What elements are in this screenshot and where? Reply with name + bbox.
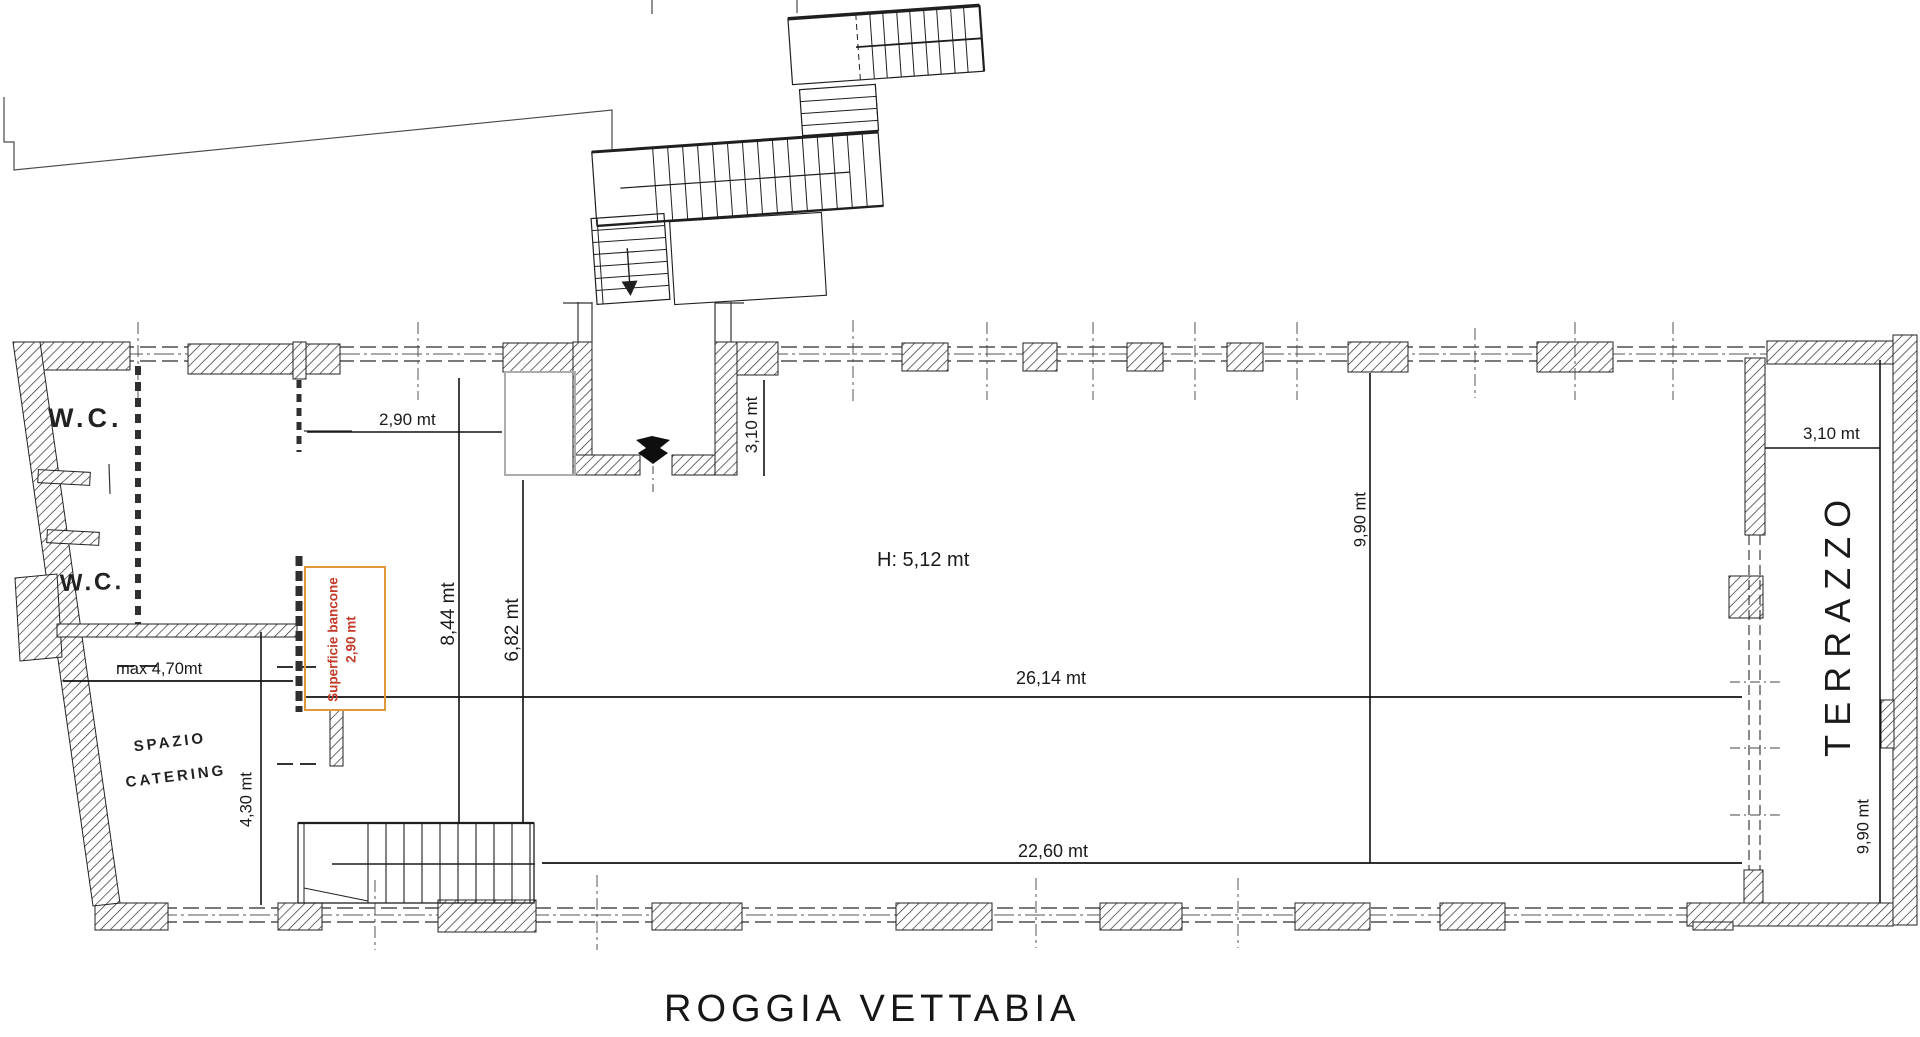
- floor-plan-page: W.C. W.C. SPAZIO CATERING Superficie ban…: [0, 0, 1920, 1037]
- dim-catering-max-width: max 4,70mt: [116, 661, 202, 678]
- entrance-vestibule: [505, 302, 744, 495]
- terrazzo-wall: [1729, 358, 1780, 903]
- label-height: H: 5,12 mt: [877, 550, 969, 571]
- boundary-line: [4, 0, 797, 170]
- entrance-arrow-icon: [636, 436, 670, 464]
- right-wall: [1881, 335, 1917, 925]
- label-bancone-line1: Superficie bancone: [324, 565, 342, 715]
- down-arrow-icon: [619, 248, 638, 297]
- label-bancone: Superficie bancone 2,90 mt: [324, 565, 359, 715]
- staircase-bottom: [298, 823, 535, 903]
- dim-terrazzo-width: 3,10 mt: [1803, 425, 1860, 443]
- caption-roggia-vettabia: ROGGIA VETTABIA: [664, 990, 1080, 1030]
- dim-opening-top: 2,90 mt: [379, 411, 436, 429]
- label-bancone-line2: 2,90 mt: [342, 565, 360, 715]
- dim-entrance-depth: 3,10 mt: [743, 365, 761, 485]
- label-terrazzo: TERRAZZO: [1819, 474, 1857, 774]
- dim-inner-span: 6,82 mt: [503, 570, 523, 690]
- staircase-top: [591, 5, 984, 304]
- dim-left-span: 8,44 mt: [439, 554, 459, 674]
- dim-catering-depth: 4,30 mt: [238, 740, 255, 860]
- dim-hall-depth: 9,90 mt: [1352, 460, 1369, 580]
- gray-room-outline: [505, 372, 575, 475]
- floor-plan-drawing: [0, 0, 1920, 1037]
- label-wc-2: W.C.: [60, 569, 125, 596]
- dim-hall-length: 26,14 mt: [1016, 669, 1086, 688]
- dim-terrazzo-depth: 9,90 mt: [1855, 767, 1872, 887]
- top-wall: [30, 320, 1917, 402]
- label-wc-1: W.C.: [48, 404, 123, 432]
- dim-hall-length-lower: 22,60 mt: [1018, 842, 1088, 861]
